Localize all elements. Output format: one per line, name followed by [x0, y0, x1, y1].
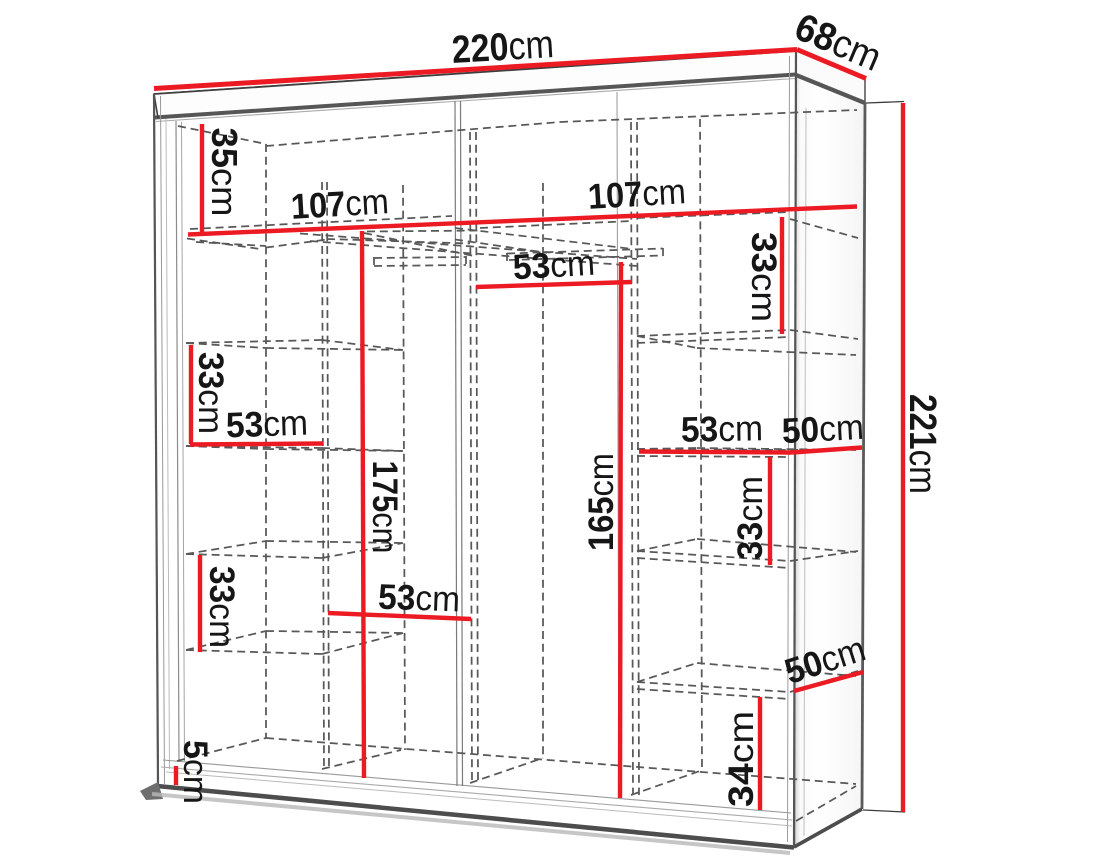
svg-text:175cm: 175cm: [365, 461, 405, 554]
svg-text:50cm: 50cm: [781, 407, 865, 451]
svg-text:33cm: 33cm: [191, 352, 231, 434]
svg-text:107cm: 107cm: [587, 172, 687, 218]
svg-text:107cm: 107cm: [290, 182, 390, 228]
svg-text:34cm: 34cm: [721, 711, 761, 807]
svg-text:221cm: 221cm: [901, 394, 943, 494]
svg-text:33cm: 33cm: [730, 476, 770, 560]
svg-text:53cm: 53cm: [377, 577, 460, 620]
svg-text:35cm: 35cm: [204, 128, 245, 217]
svg-text:33cm: 33cm: [744, 232, 784, 322]
svg-text:53cm: 53cm: [512, 243, 596, 288]
svg-text:53cm: 53cm: [681, 409, 764, 450]
svg-text:220cm: 220cm: [451, 23, 555, 72]
svg-text:53cm: 53cm: [225, 403, 308, 446]
svg-text:33cm: 33cm: [202, 566, 242, 648]
svg-text:165cm: 165cm: [581, 453, 621, 551]
svg-text:5cm: 5cm: [176, 740, 214, 804]
